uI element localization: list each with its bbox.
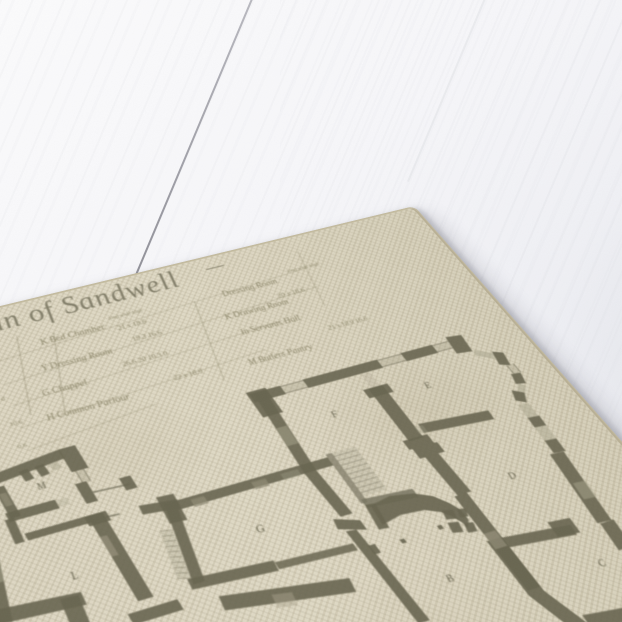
svg-text:Y Dressing Room: Y Dressing Room: [40, 347, 116, 373]
svg-text:21 x 18.9 16.6: 21 x 18.9 16.6: [326, 315, 370, 331]
svg-text:G: G: [253, 523, 268, 536]
svg-text:19.3 16.6: 19.3 16.6: [130, 328, 164, 343]
svg-text:L: L: [67, 570, 82, 584]
svg-text:D: D: [504, 470, 520, 481]
svg-text:M: M: [33, 480, 49, 492]
svg-text:10.6: 10.6: [8, 419, 25, 429]
svg-text:—: —: [199, 256, 230, 277]
svg-text:H Common Parlour: H Common Parlour: [43, 393, 132, 424]
svg-text:M Butlers Pantry: M Butlers Pantry: [245, 342, 315, 367]
svg-text:21 x 18.6: 21 x 18.6: [115, 317, 149, 331]
svg-text:a: a: [0, 395, 7, 403]
svg-text:F: F: [327, 409, 341, 420]
svg-text:E: E: [421, 380, 435, 390]
svg-text:G Chappel: G Chappel: [40, 378, 90, 398]
svg-text:Dressing Room: Dressing Room: [218, 277, 279, 298]
svg-text:22 x 18.9: 22 x 18.9: [171, 367, 205, 382]
svg-text:long wide high: long wide high: [286, 262, 321, 274]
svg-text:B: B: [443, 572, 457, 584]
svg-text:K Bed Chamber: K Bed Chamber: [37, 323, 108, 347]
svg-text:0.6: 0.6: [16, 442, 30, 451]
svg-text:C: C: [595, 557, 610, 569]
svg-text:In Servants Hall: In Servants Hall: [237, 313, 303, 336]
